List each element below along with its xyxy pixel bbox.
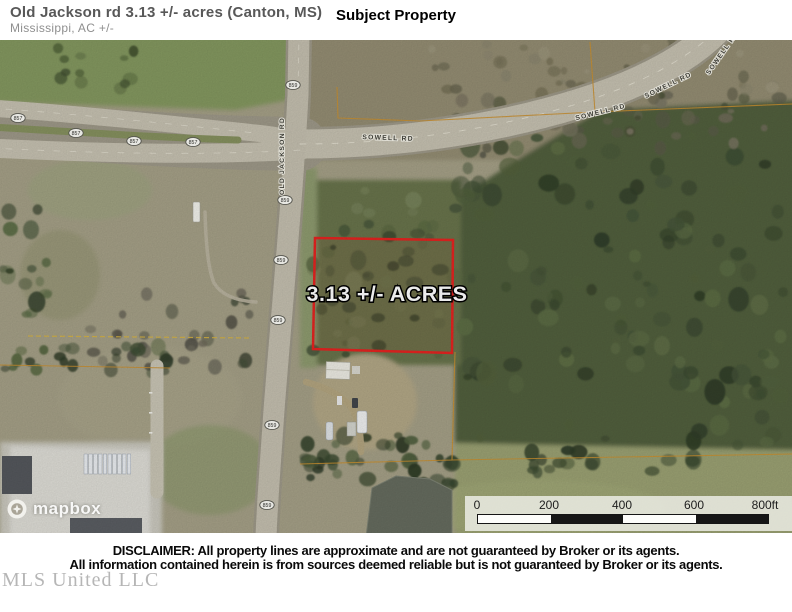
aerial-map-canvas[interactable]: 3.13 +/- ACRES 857 857 857 857 859 859 8… bbox=[0, 40, 792, 533]
photo-grain bbox=[0, 40, 792, 533]
scale-tick: 800ft bbox=[752, 498, 779, 512]
scale-tick: 400 bbox=[612, 498, 632, 512]
listing-title: Old Jackson rd 3.13 +/- acres (Canton, M… bbox=[10, 4, 322, 21]
scale-tick: 600 bbox=[684, 498, 704, 512]
mapbox-wordmark: mapbox bbox=[33, 499, 101, 519]
disclaimer-text: DISCLAIMER: All property lines are appro… bbox=[51, 544, 741, 571]
mapbox-logo[interactable]: mapbox bbox=[6, 498, 101, 520]
scale-tick: 0 bbox=[474, 498, 481, 512]
map-scale-bar: 0 200 400 600 800ft bbox=[465, 496, 792, 531]
scale-segment bbox=[551, 515, 624, 523]
scale-segment bbox=[623, 515, 696, 523]
subject-property-label: Subject Property bbox=[336, 7, 456, 24]
disclaimer-line-1: DISCLAIMER: All property lines are appro… bbox=[51, 544, 741, 558]
scale-bar-segments bbox=[477, 514, 769, 524]
scale-tick-labels: 0 200 400 600 800ft bbox=[465, 498, 792, 513]
listing-subtitle: Mississippi, AC +/- bbox=[10, 21, 114, 35]
aerial-imagery: 3.13 +/- ACRES 857 857 857 857 859 859 8… bbox=[0, 40, 792, 533]
scale-segment bbox=[478, 515, 551, 523]
mapbox-circle-icon bbox=[6, 498, 28, 520]
flyer-header: Old Jackson rd 3.13 +/- acres (Canton, M… bbox=[0, 0, 792, 40]
flyer-footer: DISCLAIMER: All property lines are appro… bbox=[0, 533, 792, 612]
mls-watermark: MLS United LLC bbox=[2, 569, 159, 592]
scale-segment bbox=[696, 515, 769, 523]
scale-tick: 200 bbox=[539, 498, 559, 512]
